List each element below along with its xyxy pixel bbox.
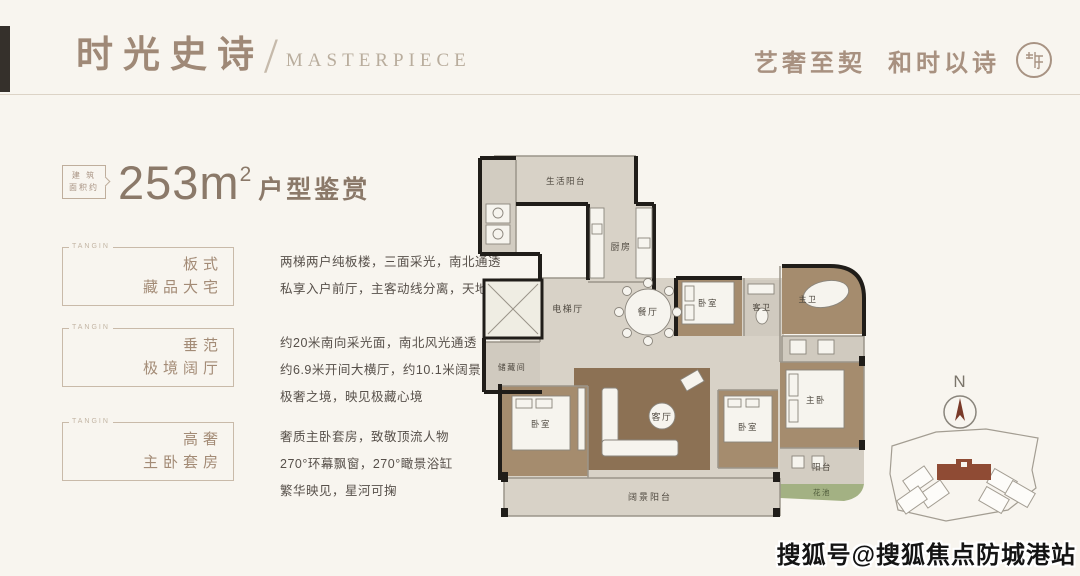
page-title: 时光史诗	[76, 32, 264, 80]
feature-block-2: TANGIN 垂范 极境阔厅 约20米南向采光面，南北风光通透 约6.9米开间大…	[62, 328, 507, 411]
area-tag-line1: 建 筑	[72, 171, 96, 180]
area-callout: 建 筑 面积约 253m2 户型鉴赏	[62, 158, 370, 206]
room-label: 电梯厅	[552, 303, 584, 314]
feature-label-box: TANGIN 高奢 主卧套房	[62, 422, 234, 481]
feature-desc-line: 奢质主卧套房，致敬顶流人物	[280, 424, 453, 451]
feature-label-line1: 高奢	[73, 428, 223, 451]
feature-label-box: TANGIN 垂范 极境阔厅	[62, 328, 234, 387]
room-label: 卧室	[738, 422, 758, 432]
area-suffix: 户型鉴赏	[258, 158, 370, 206]
tagline-left: 艺奢至契	[754, 43, 866, 78]
brand-seal-icon	[1016, 42, 1052, 78]
feature-desc-line: 270°环幕飘窗，270°瞰景浴缸	[280, 451, 453, 478]
site-plan	[886, 422, 1046, 532]
area-value: 253m2	[118, 159, 252, 206]
room-label: 卧室	[698, 298, 718, 308]
room-label: 客卫	[753, 302, 772, 312]
room-label: 花池	[813, 487, 831, 497]
compass-north-label: N	[936, 372, 984, 392]
floorplan: 生活阳台 厨房 电梯厅 储藏间 餐厅 卧室 客卫 主卫 客厅 卧室 卧室 主卧 …	[478, 146, 878, 524]
feature-brand-text: TANGIN	[69, 324, 113, 331]
header-tagline: 艺奢至契 和时以诗	[754, 42, 1052, 78]
feature-desc-line: 极奢之境，映见极藏心境	[280, 384, 507, 411]
feature-label-line1: 板式	[73, 253, 223, 276]
room-label: 主卧	[806, 395, 826, 405]
feature-brand-text: TANGIN	[69, 418, 113, 425]
header-title: 时光史诗 / MASTERPIECE	[76, 30, 471, 80]
room-label: 阔景阳台	[628, 491, 672, 502]
area-superscript: 2	[240, 163, 253, 186]
tag-pointer	[101, 177, 111, 187]
watermark: 搜狐号@搜狐焦点防城港站	[777, 535, 1076, 570]
feature-label-box: TANGIN 板式 藏品大宅	[62, 247, 234, 306]
room-label: 主卫	[799, 294, 818, 304]
room-label: 卧室	[531, 419, 551, 429]
feature-desc-line: 约20米南向采光面，南北风光通透	[280, 330, 507, 357]
feature-label-line1: 垂范	[73, 334, 223, 357]
slash-divider: /	[264, 30, 278, 80]
feature-block-3: TANGIN 高奢 主卧套房 奢质主卧套房，致敬顶流人物 270°环幕飘窗，27…	[62, 422, 453, 505]
feature-brand-text: TANGIN	[69, 243, 113, 250]
feature-desc-line: 繁华映见，星河可掬	[280, 478, 453, 505]
feature-label-line2: 极境阔厅	[73, 357, 223, 380]
room-label: 生活阳台	[546, 176, 586, 186]
elevator-icon	[484, 280, 542, 338]
room-label: 阳台	[812, 462, 832, 472]
feature-label-line2: 藏品大宅	[73, 276, 223, 299]
feature-label-line2: 主卧套房	[73, 451, 223, 474]
feature-description: 奢质主卧套房，致敬顶流人物 270°环幕飘窗，270°瞰景浴缸 繁华映见，星河可…	[280, 422, 453, 505]
bed-icon	[724, 396, 772, 442]
room-label: 餐厅	[637, 306, 658, 317]
room-label: 厨房	[610, 241, 631, 252]
header-divider-line	[0, 94, 1080, 95]
area-tag: 建 筑 面积约	[62, 165, 106, 199]
room-label: 储藏间	[498, 362, 527, 372]
tagline-right: 和时以诗	[888, 43, 1000, 78]
highlighted-building	[937, 459, 991, 480]
poster-page: 时光史诗 / MASTERPIECE 艺奢至契 和时以诗 建 筑 面积约 253…	[0, 0, 1080, 576]
left-accent-bar	[0, 26, 10, 92]
area-tag-line2: 面积约	[69, 183, 99, 192]
feature-description: 约20米南向采光面，南北风光通透 约6.9米开间大横厅，约10.1米阔景阳台 极…	[280, 328, 507, 411]
page-title-en: MASTERPIECE	[286, 50, 471, 80]
feature-desc-line: 约6.9米开间大横厅，约10.1米阔景阳台	[280, 357, 507, 384]
room-label: 客厅	[651, 411, 672, 422]
